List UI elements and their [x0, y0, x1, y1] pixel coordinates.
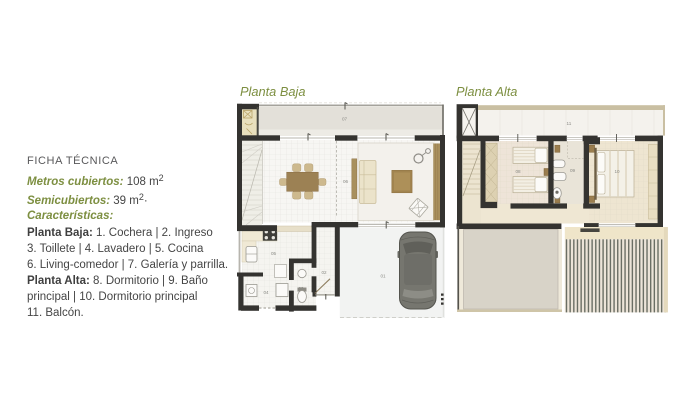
svg-text:05: 05 [271, 251, 277, 256]
svg-text:07: 07 [342, 117, 348, 122]
svg-text:08: 08 [516, 169, 522, 174]
svg-text:01: 01 [381, 274, 387, 279]
svg-text:11: 11 [567, 121, 572, 126]
svg-text:04: 04 [264, 290, 270, 295]
svg-text:10: 10 [615, 169, 621, 174]
svg-text:03: 03 [299, 286, 305, 291]
svg-text:06: 06 [343, 179, 349, 184]
svg-text:02: 02 [322, 270, 328, 275]
svg-text:09: 09 [570, 168, 576, 173]
